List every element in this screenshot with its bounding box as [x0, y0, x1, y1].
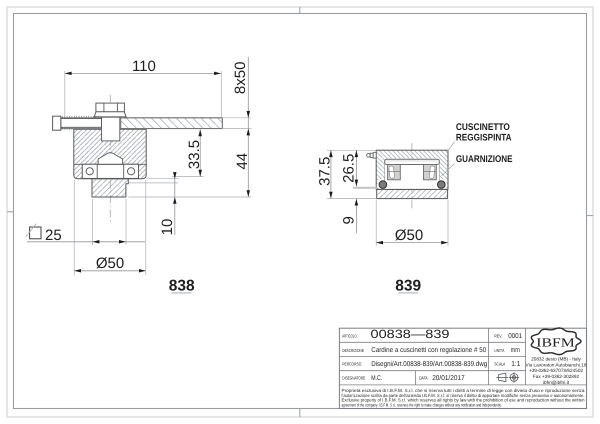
- svg-text:REGGISPINTA: REGGISPINTA: [456, 132, 512, 143]
- svg-text:0001: 0001: [508, 333, 522, 340]
- svg-text:00838—839: 00838—839: [371, 327, 450, 341]
- svg-text:DATA: DATA: [419, 376, 428, 381]
- svg-text:44: 44: [234, 153, 251, 170]
- svg-text:26.5: 26.5: [341, 154, 358, 183]
- svg-text:M.C.: M.C.: [371, 375, 382, 382]
- svg-text:20/01/2017: 20/01/2017: [432, 374, 465, 382]
- svg-text:33.5: 33.5: [186, 140, 203, 169]
- svg-text:37.5: 37.5: [316, 157, 333, 186]
- svg-text:9: 9: [341, 216, 358, 224]
- svg-text:REV.: REV.: [494, 334, 502, 339]
- svg-text:Via Lavoratori Autobianchi,18: Via Lavoratori Autobianchi,18: [526, 362, 587, 367]
- svg-text:GUARNIZIONE: GUARNIZIONE: [456, 154, 513, 165]
- svg-text:mm: mm: [511, 347, 520, 354]
- svg-text:ARTICOLO.: ARTICOLO.: [342, 334, 357, 339]
- svg-text:Ø50: Ø50: [395, 227, 423, 244]
- svg-text:8x50: 8x50: [232, 62, 249, 95]
- svg-text:SCALA: SCALA: [494, 362, 505, 367]
- svg-text:IBFM: IBFM: [536, 335, 575, 349]
- svg-text:Ø50: Ø50: [96, 255, 124, 272]
- svg-text:Fax +39-0362-302892: Fax +39-0362-302892: [533, 374, 580, 379]
- svg-text:Cardine a cuscinetti con regol: Cardine a cuscinetti con regolazione # 5…: [371, 346, 486, 354]
- svg-text:Disegni/Art.00838-839/Art.0083: Disegni/Art.00838-839/Art.00838-839.dwg: [371, 360, 487, 368]
- svg-text:838: 838: [169, 278, 195, 295]
- svg-text:20832 desio (MB) - Italy: 20832 desio (MB) - Italy: [531, 357, 581, 362]
- svg-text:110: 110: [132, 58, 156, 75]
- svg-text:DESCRIZIONE: DESCRIZIONE: [342, 348, 364, 353]
- svg-text:DISEGNATORE: DISEGNATORE: [342, 376, 365, 381]
- svg-text:25: 25: [45, 227, 62, 244]
- svg-text:+39-0362-637078/624502: +39-0362-637078/624502: [529, 368, 583, 373]
- svg-text:1:1: 1:1: [511, 359, 520, 368]
- svg-text:839: 839: [395, 278, 421, 295]
- svg-text:10: 10: [159, 219, 176, 236]
- svg-text:agreement of the company. I.B.: agreement of the company. I.B.F.M. S.r.l…: [342, 402, 502, 407]
- svg-text:PERCORSO: PERCORSO: [342, 362, 361, 367]
- svg-text:ibfm@ibfm.it: ibfm@ibfm.it: [543, 380, 570, 385]
- svg-text:UNITÀ: UNITÀ: [494, 348, 504, 353]
- svg-text:CUSCINETTO: CUSCINETTO: [456, 122, 510, 133]
